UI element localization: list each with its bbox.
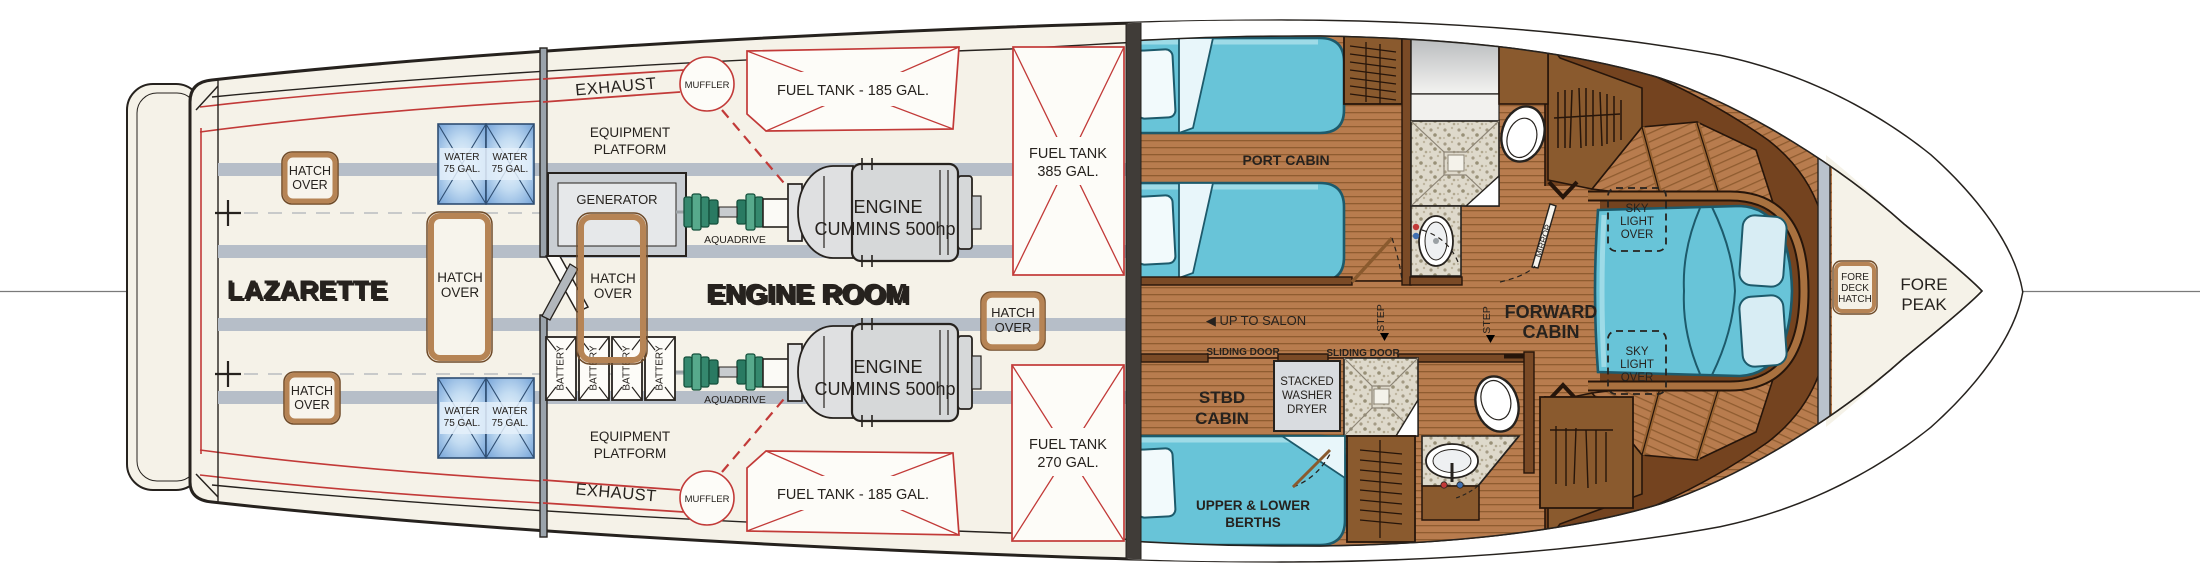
svg-text:HATCH: HATCH	[991, 305, 1035, 320]
svg-text:CUMMINS 500hp: CUMMINS 500hp	[814, 379, 955, 399]
svg-text:FUEL TANK: FUEL TANK	[1029, 146, 1107, 162]
svg-text:LIGHT: LIGHT	[1620, 216, 1654, 228]
svg-text:OVER: OVER	[441, 285, 480, 300]
svg-text:BATTERY: BATTERY	[622, 345, 633, 391]
svg-text:75 GAL.: 75 GAL.	[492, 418, 529, 429]
svg-text:BATTERY: BATTERY	[655, 345, 666, 391]
svg-text:OVER: OVER	[995, 320, 1032, 335]
svg-text:GENERATOR: GENERATOR	[576, 192, 657, 207]
svg-text:FUEL TANK: FUEL TANK	[1029, 437, 1107, 453]
svg-text:OVER: OVER	[292, 178, 327, 192]
svg-text:ENGINE: ENGINE	[853, 357, 922, 377]
svg-text:LAZARETTE: LAZARETTE	[227, 275, 387, 305]
svg-text:385 GAL.: 385 GAL.	[1037, 164, 1098, 180]
svg-text:FUEL TANK - 185 GAL.: FUEL TANK - 185 GAL.	[777, 83, 929, 99]
svg-text:SKY: SKY	[1625, 346, 1648, 358]
svg-text:STEP: STEP	[1375, 304, 1387, 331]
svg-text:HATCH: HATCH	[291, 384, 333, 398]
svg-text:STACKED: STACKED	[1280, 376, 1333, 388]
svg-text:PEAK: PEAK	[1901, 295, 1947, 314]
svg-text:FUEL TANK - 185 GAL.: FUEL TANK - 185 GAL.	[777, 487, 929, 503]
svg-text:EQUIPMENT: EQUIPMENT	[590, 125, 670, 140]
svg-text:FORWARD: FORWARD	[1505, 302, 1598, 322]
svg-text:ENGINE: ENGINE	[853, 197, 922, 217]
svg-text:HATCH: HATCH	[289, 164, 331, 178]
svg-text:MUFFLER: MUFFLER	[685, 494, 730, 505]
svg-text:ENGINE ROOM: ENGINE ROOM	[706, 278, 908, 309]
svg-text:PORT CABIN: PORT CABIN	[1242, 152, 1329, 168]
svg-text:MUFFLER: MUFFLER	[685, 80, 730, 91]
svg-text:WATER: WATER	[493, 152, 528, 163]
svg-text:75 GAL.: 75 GAL.	[492, 164, 529, 175]
svg-text:AQUADRIVE: AQUADRIVE	[704, 234, 766, 246]
svg-text:WATER: WATER	[493, 406, 528, 417]
svg-text:FORE: FORE	[1900, 275, 1947, 294]
svg-text:OVER: OVER	[1621, 229, 1654, 241]
svg-text:STBD: STBD	[1199, 388, 1245, 407]
svg-text:OVER: OVER	[1621, 372, 1654, 384]
svg-text:WATER: WATER	[445, 152, 480, 163]
svg-text:HATCH: HATCH	[1838, 294, 1872, 305]
svg-text:STEP: STEP	[1481, 306, 1493, 333]
svg-text:CUMMINS 500hp: CUMMINS 500hp	[814, 219, 955, 239]
svg-text:AQUADRIVE: AQUADRIVE	[704, 394, 766, 406]
svg-text:OVER: OVER	[594, 286, 633, 301]
svg-text:LIGHT: LIGHT	[1620, 359, 1654, 371]
svg-text:UPPER & LOWER: UPPER & LOWER	[1196, 498, 1310, 513]
svg-text:FORE: FORE	[1841, 272, 1869, 283]
svg-text:WASHER: WASHER	[1282, 390, 1332, 402]
svg-text:DRYER: DRYER	[1287, 404, 1327, 416]
svg-text:75 GAL.: 75 GAL.	[444, 164, 481, 175]
svg-text:BERTHS: BERTHS	[1225, 515, 1281, 530]
svg-text:CABIN: CABIN	[1523, 322, 1580, 342]
svg-text:PLATFORM: PLATFORM	[594, 142, 667, 157]
svg-text:SKY: SKY	[1625, 203, 1648, 215]
svg-text:EQUIPMENT: EQUIPMENT	[590, 429, 670, 444]
svg-text:PLATFORM: PLATFORM	[594, 446, 667, 461]
svg-text:BATTERY: BATTERY	[556, 345, 567, 391]
svg-text:SLIDING DOOR: SLIDING DOOR	[1206, 347, 1280, 358]
svg-text:270 GAL.: 270 GAL.	[1037, 455, 1098, 471]
svg-text:◀ UP TO SALON: ◀ UP TO SALON	[1206, 313, 1306, 328]
svg-text:75 GAL.: 75 GAL.	[444, 418, 481, 429]
svg-text:BATTERY: BATTERY	[589, 345, 600, 391]
svg-text:CABIN: CABIN	[1195, 409, 1249, 428]
svg-text:OVER: OVER	[294, 398, 329, 412]
svg-text:HATCH: HATCH	[590, 271, 636, 286]
svg-text:DECK: DECK	[1841, 283, 1869, 294]
svg-text:HATCH: HATCH	[437, 270, 483, 285]
svg-text:WATER: WATER	[445, 406, 480, 417]
